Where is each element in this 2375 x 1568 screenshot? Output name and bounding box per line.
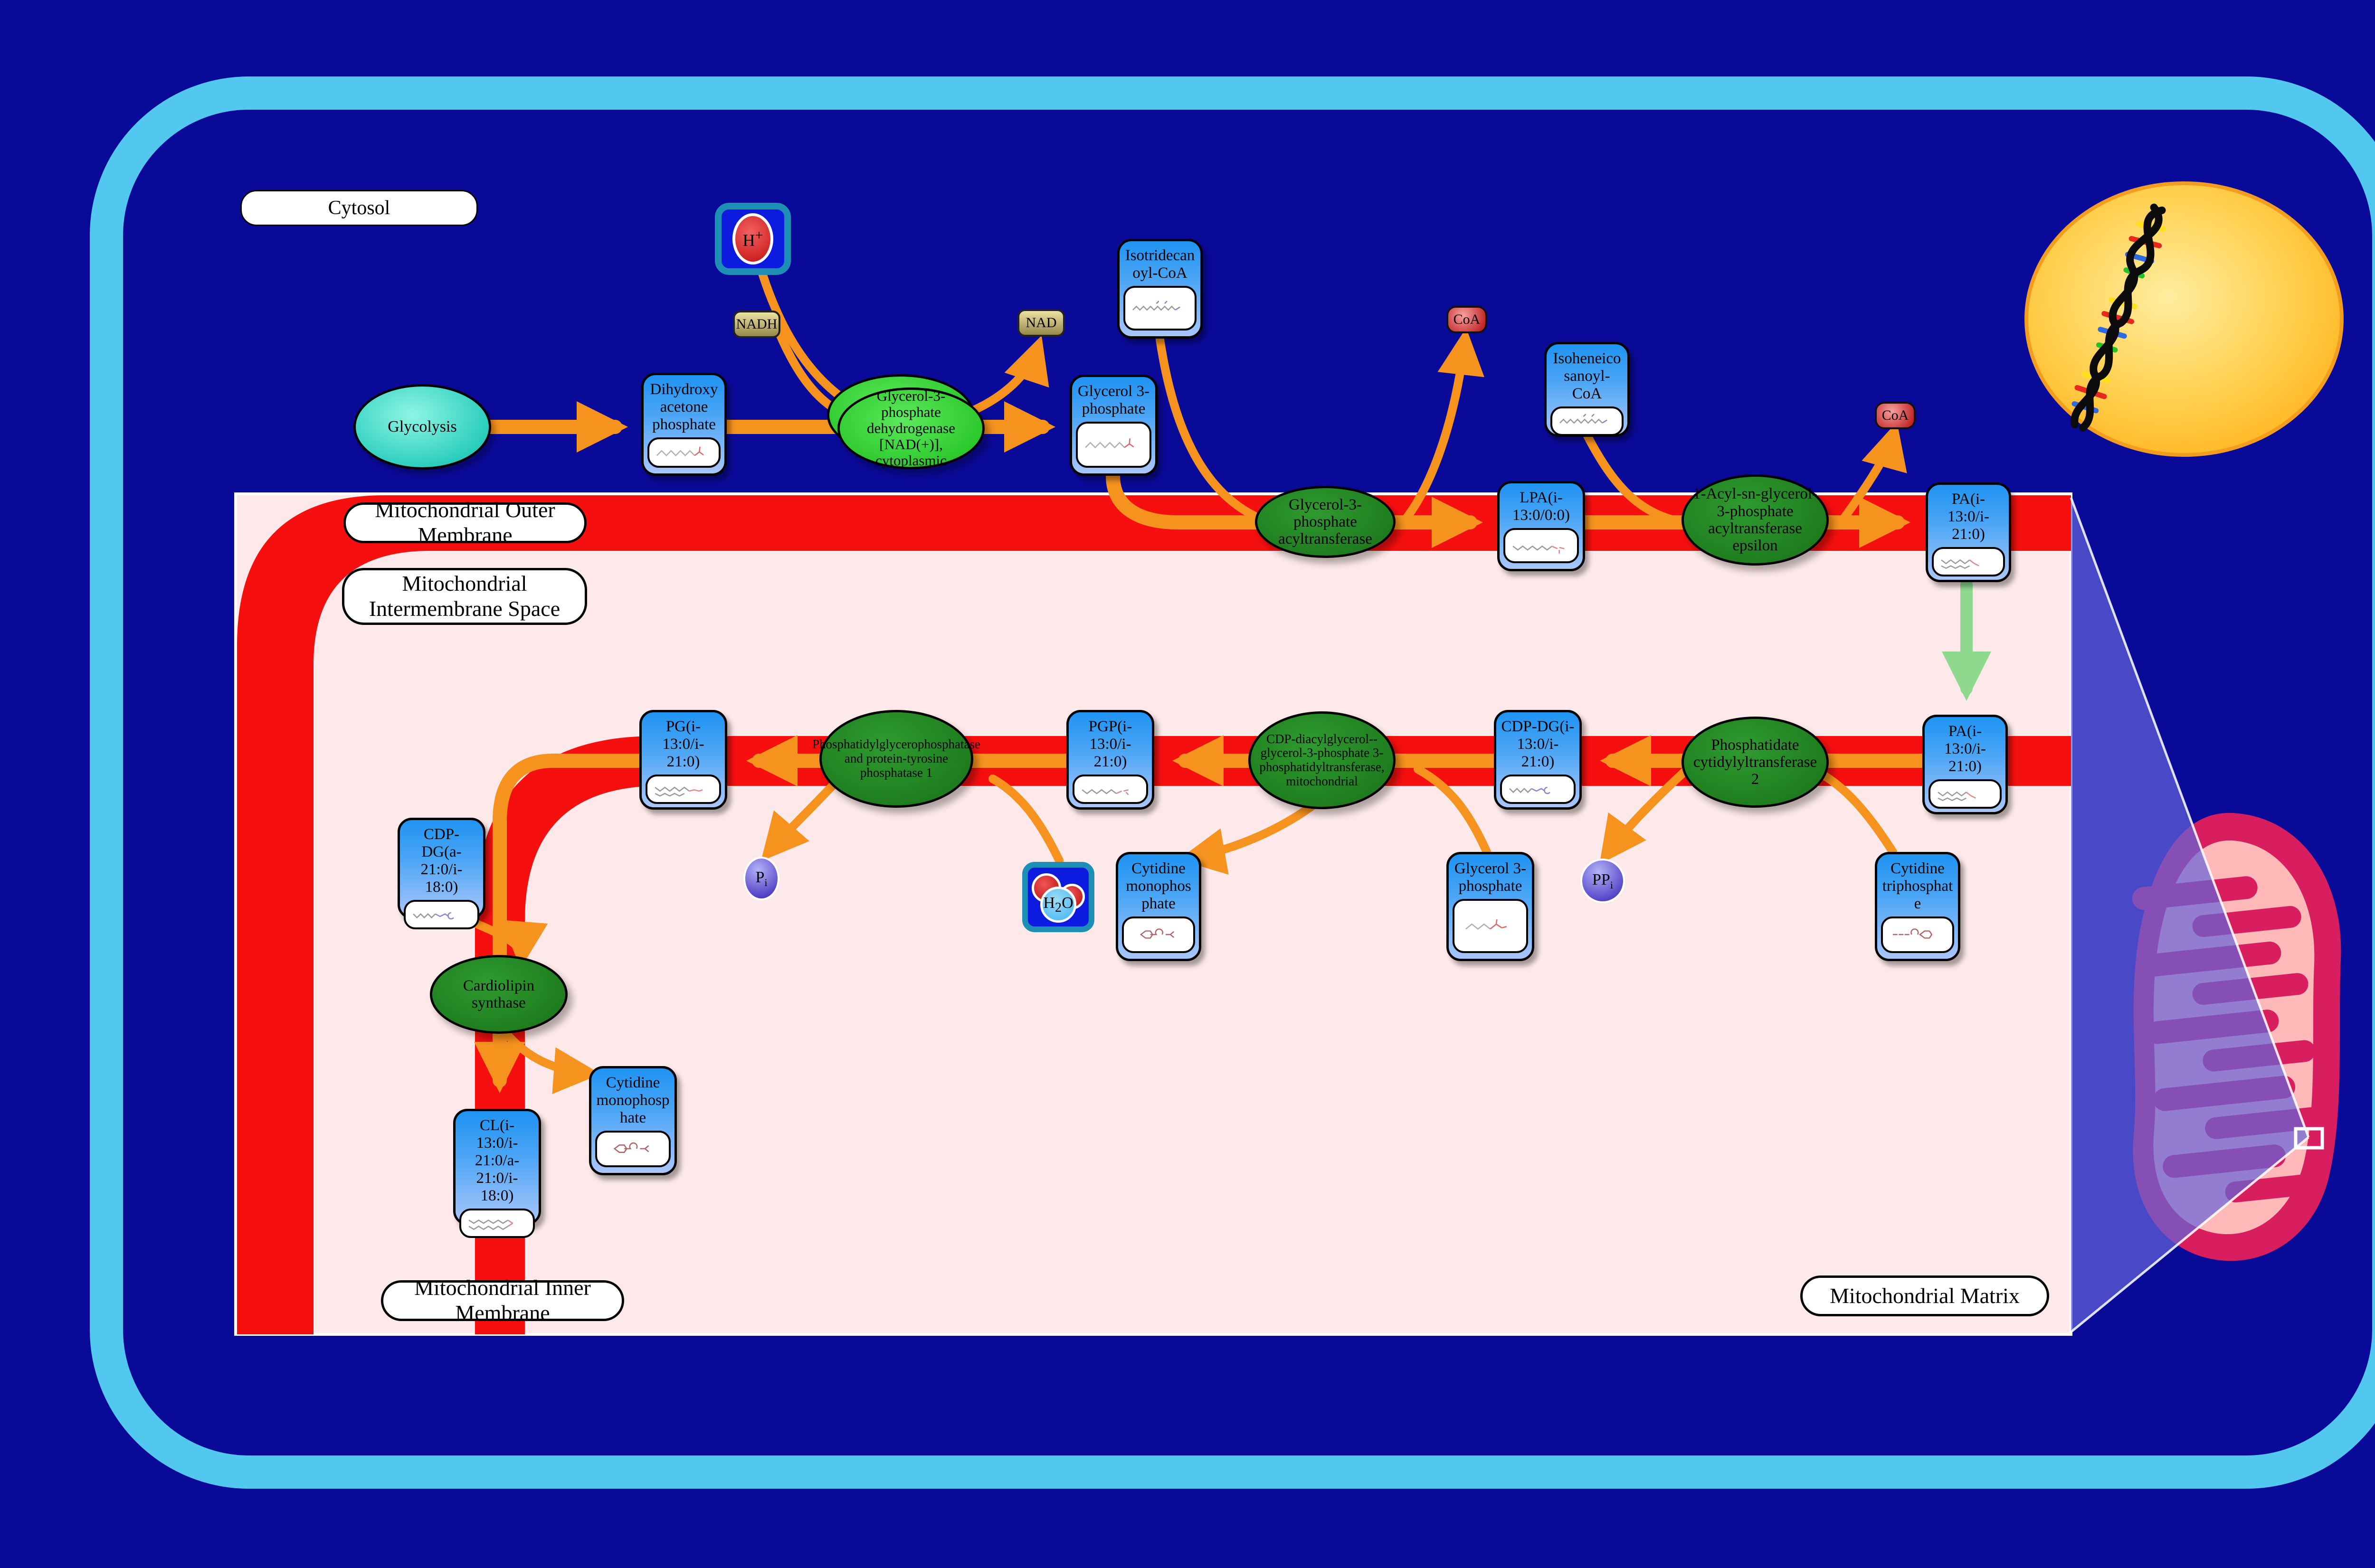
molecule-structure [1123, 286, 1197, 331]
node-pgp[interactable]: PGP(i-13:0/i-21:0) [1066, 710, 1154, 810]
region-label-text: Cytosol [328, 197, 390, 219]
molecule-structure [404, 900, 479, 929]
region-label-inner-membrane: Mitochondrial Inner Membrane [381, 1280, 624, 1321]
region-label-text: Mitochondrial Inner Membrane [383, 1275, 622, 1326]
molecule-structure [459, 1209, 535, 1238]
cofactor-coa-2[interactable]: CoA [1875, 402, 1916, 429]
enzyme-cardiolipin-synthase[interactable]: Cardiolipin synthase [430, 955, 568, 1034]
cofactor-h2o[interactable]: H2O [1022, 862, 1094, 932]
molecule-structure [1928, 779, 2002, 809]
molecule-structure [1073, 775, 1148, 804]
node-title: PA(i-13:0/i-21:0) [1932, 489, 2005, 547]
node-title: CL(i-13:0/i-21:0/a-21:0/i-18:0) [459, 1115, 535, 1209]
node-isoheneicosanoyl-coa[interactable]: Isoheneicosanoyl-CoA [1544, 342, 1630, 437]
pathway-diagram: Cytosol Mitochondrial Outer Membrane Mit… [0, 0, 2375, 1568]
region-label-outer-membrane: Mitochondrial Outer Membrane [343, 502, 587, 543]
node-cmp-left[interactable]: Cytidine monophosphate [589, 1066, 677, 1175]
node-title: Dihydroxyacetone phosphate [647, 379, 721, 437]
node-cmp-mid[interactable]: Cytidine monophosphate [1116, 852, 1201, 961]
enzyme-cds2[interactable]: Phosphatidate cytidylyltransferase 2 [1681, 717, 1829, 808]
nucleus-graphic [2026, 183, 2342, 455]
enzyme-label: Phosphatidylglycerophosphatase and prote… [812, 737, 980, 780]
node-title: PA(i-13:0/i-21:0) [1928, 721, 2002, 779]
region-label-text: Mitochondrial Matrix [1830, 1284, 2020, 1309]
process-node-glycolysis[interactable]: Glycolysis [353, 384, 491, 470]
molecule-structure [1076, 422, 1151, 468]
molecule-structure [1122, 916, 1195, 953]
node-isotridecanoyl-coa[interactable]: Isotridecanoyl-CoA [1117, 239, 1203, 339]
node-pa-outer[interactable]: PA(i-13:0/i-21:0) [1926, 482, 2011, 582]
molecule-structure [595, 1131, 671, 1167]
water-molecule-icon: H2O [1040, 887, 1076, 923]
node-glycerol-3-phosphate-top[interactable]: Glycerol 3-phosphate [1070, 375, 1158, 476]
cofactor-pi[interactable]: Pi [743, 857, 779, 900]
enzyme-gpat[interactable]: Glycerol-3-phosphate acyltransferase [1255, 486, 1396, 558]
node-title: CDP-DG(i-13:0/i-21:0) [1500, 716, 1576, 775]
enzyme-label: Glycerol-3-phosphate dehydrogenase [NAD(… [848, 388, 974, 469]
molecule-structure [1932, 547, 2005, 576]
enzyme-ptpmt1[interactable]: Phosphatidylglycerophosphatase and prote… [819, 710, 973, 808]
node-ctp[interactable]: Cytidine triphosphate [1875, 852, 1960, 961]
molecule-structure [1500, 775, 1576, 804]
molecule-structure [1550, 406, 1624, 436]
region-label-cytosol: Cytosol [240, 190, 478, 226]
node-title: Isoheneicosanoyl-CoA [1550, 348, 1624, 406]
enzyme-gpd1[interactable]: Glycerol-3-phosphate dehydrogenase [NAD(… [837, 387, 985, 469]
region-label-matrix: Mitochondrial Matrix [1800, 1275, 2049, 1316]
node-pg[interactable]: PG(i-13:0/i-21:0) [639, 710, 727, 810]
node-title: LPA(i-13:0/0:0) [1503, 487, 1579, 528]
region-label-text: Mitochondrial Intermembrane Space [359, 571, 570, 622]
cofactor-ppi[interactable]: PPi [1580, 859, 1625, 903]
enzyme-label: Phosphatidate cytidylyltransferase 2 [1692, 737, 1818, 788]
cofactor-h-plus[interactable]: H+ [715, 203, 791, 275]
node-dhap[interactable]: Dihydroxyacetone phosphate [641, 373, 727, 476]
node-cdp-dg-a[interactable]: CDP-DG(a-21:0/i-18:0) [398, 818, 485, 919]
node-title: PG(i-13:0/i-21:0) [646, 716, 721, 775]
node-lpa[interactable]: LPA(i-13:0/0:0) [1497, 481, 1585, 571]
molecule-structure [1881, 916, 1954, 953]
cofactor-nadh[interactable]: NADH [733, 311, 780, 338]
cofactor-coa-1[interactable]: CoA [1446, 306, 1487, 333]
node-title: Glycerol 3-phosphate [1076, 381, 1151, 422]
node-title: PGP(i-13:0/i-21:0) [1073, 716, 1148, 775]
cofactor-label: NAD [1026, 315, 1057, 331]
cofactor-label: CoA [1882, 407, 1909, 424]
molecule-structure [1503, 528, 1579, 563]
h-plus-ion: H+ [732, 213, 773, 264]
node-glycerol-3-phosphate-bottom[interactable]: Glycerol 3-phosphate [1446, 852, 1534, 961]
region-label-text: Mitochondrial Outer Membrane [346, 498, 584, 548]
enzyme-pgs1[interactable]: CDP-diacylglycerol--glycerol-3-phosphate… [1248, 711, 1396, 809]
enzyme-label: 1-Acyl-sn-glycerol-3-phosphate acyltrans… [1692, 485, 1818, 554]
node-pa-inner[interactable]: PA(i-13:0/i-21:0) [1922, 715, 2008, 814]
process-label: Glycolysis [388, 418, 456, 436]
node-cardiolipin[interactable]: CL(i-13:0/i-21:0/a-21:0/i-18:0) [453, 1109, 541, 1225]
node-title: Isotridecanoyl-CoA [1123, 245, 1197, 286]
molecule-structure [647, 437, 721, 468]
node-title: Glycerol 3-phosphate [1453, 858, 1528, 899]
molecule-structure [646, 775, 721, 804]
node-title: Cytidine monophosphate [1122, 858, 1195, 916]
node-title: Cytidine triphosphate [1881, 858, 1954, 916]
molecule-structure [1453, 899, 1528, 953]
region-label-intermembrane-space: Mitochondrial Intermembrane Space [342, 568, 587, 625]
enzyme-label: CDP-diacylglycerol--glycerol-3-phosphate… [1259, 732, 1385, 789]
node-title: CDP-DG(a-21:0/i-18:0) [404, 824, 479, 900]
enzyme-label: Glycerol-3-phosphate acyltransferase [1266, 496, 1385, 548]
node-cdp-dg[interactable]: CDP-DG(i-13:0/i-21:0) [1494, 710, 1582, 810]
diagram-canvas [0, 0, 2375, 1568]
enzyme-agpat-epsilon[interactable]: 1-Acyl-sn-glycerol-3-phosphate acyltrans… [1681, 474, 1829, 566]
cofactor-label: CoA [1453, 312, 1481, 328]
enzyme-label: Cardiolipin synthase [441, 977, 557, 1012]
cofactor-nad[interactable]: NAD [1017, 309, 1065, 337]
cofactor-label: NADH [736, 316, 778, 332]
node-title: Cytidine monophosphate [595, 1072, 671, 1131]
